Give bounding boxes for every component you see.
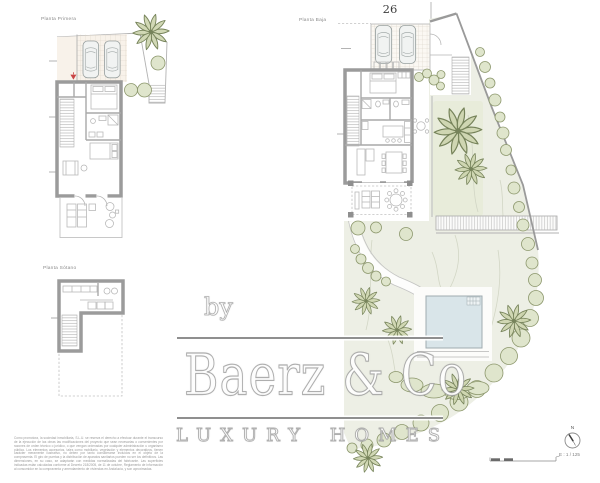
first-floor-label: Planta Primera xyxy=(41,17,76,22)
basement-plan xyxy=(51,281,123,396)
exterior-stairs xyxy=(149,84,165,103)
watermark-by: by xyxy=(204,293,233,321)
palm-tree-icon xyxy=(133,14,169,50)
scale-bar xyxy=(490,456,560,461)
car-icon xyxy=(83,41,99,78)
swimming-pool xyxy=(426,296,482,348)
basement-label: Planta Sótano xyxy=(43,266,76,271)
first-floor-plan xyxy=(49,14,169,238)
car-icon xyxy=(105,41,121,78)
watermark-brand: Baerz & Co xyxy=(184,342,436,408)
car-icon xyxy=(376,26,392,64)
compass-north-label: N xyxy=(567,426,578,431)
patio-table xyxy=(413,119,428,133)
garage xyxy=(371,24,430,70)
entry-stairs xyxy=(452,57,469,94)
staircase xyxy=(347,96,359,146)
watermark-rule xyxy=(177,417,443,419)
scale-label: E : 1 / 125 xyxy=(559,452,580,457)
ground-floor-label: Planta Baja xyxy=(299,18,326,23)
site-plan-drawing xyxy=(0,0,600,483)
car-icon xyxy=(400,26,416,64)
floorplan-sheet: Planta Primera Planta Baja Planta Sótano… xyxy=(0,0,600,483)
watermark-rule xyxy=(177,337,443,339)
watermark-tagline: LUXURY HOMES xyxy=(176,425,448,446)
compass-icon xyxy=(565,433,580,448)
staircase xyxy=(60,99,74,147)
plan-number: 26 xyxy=(378,2,402,16)
staircase xyxy=(62,315,77,346)
legal-disclaimer: Como promotora, la sociedad inmobiliaria… xyxy=(14,437,163,472)
